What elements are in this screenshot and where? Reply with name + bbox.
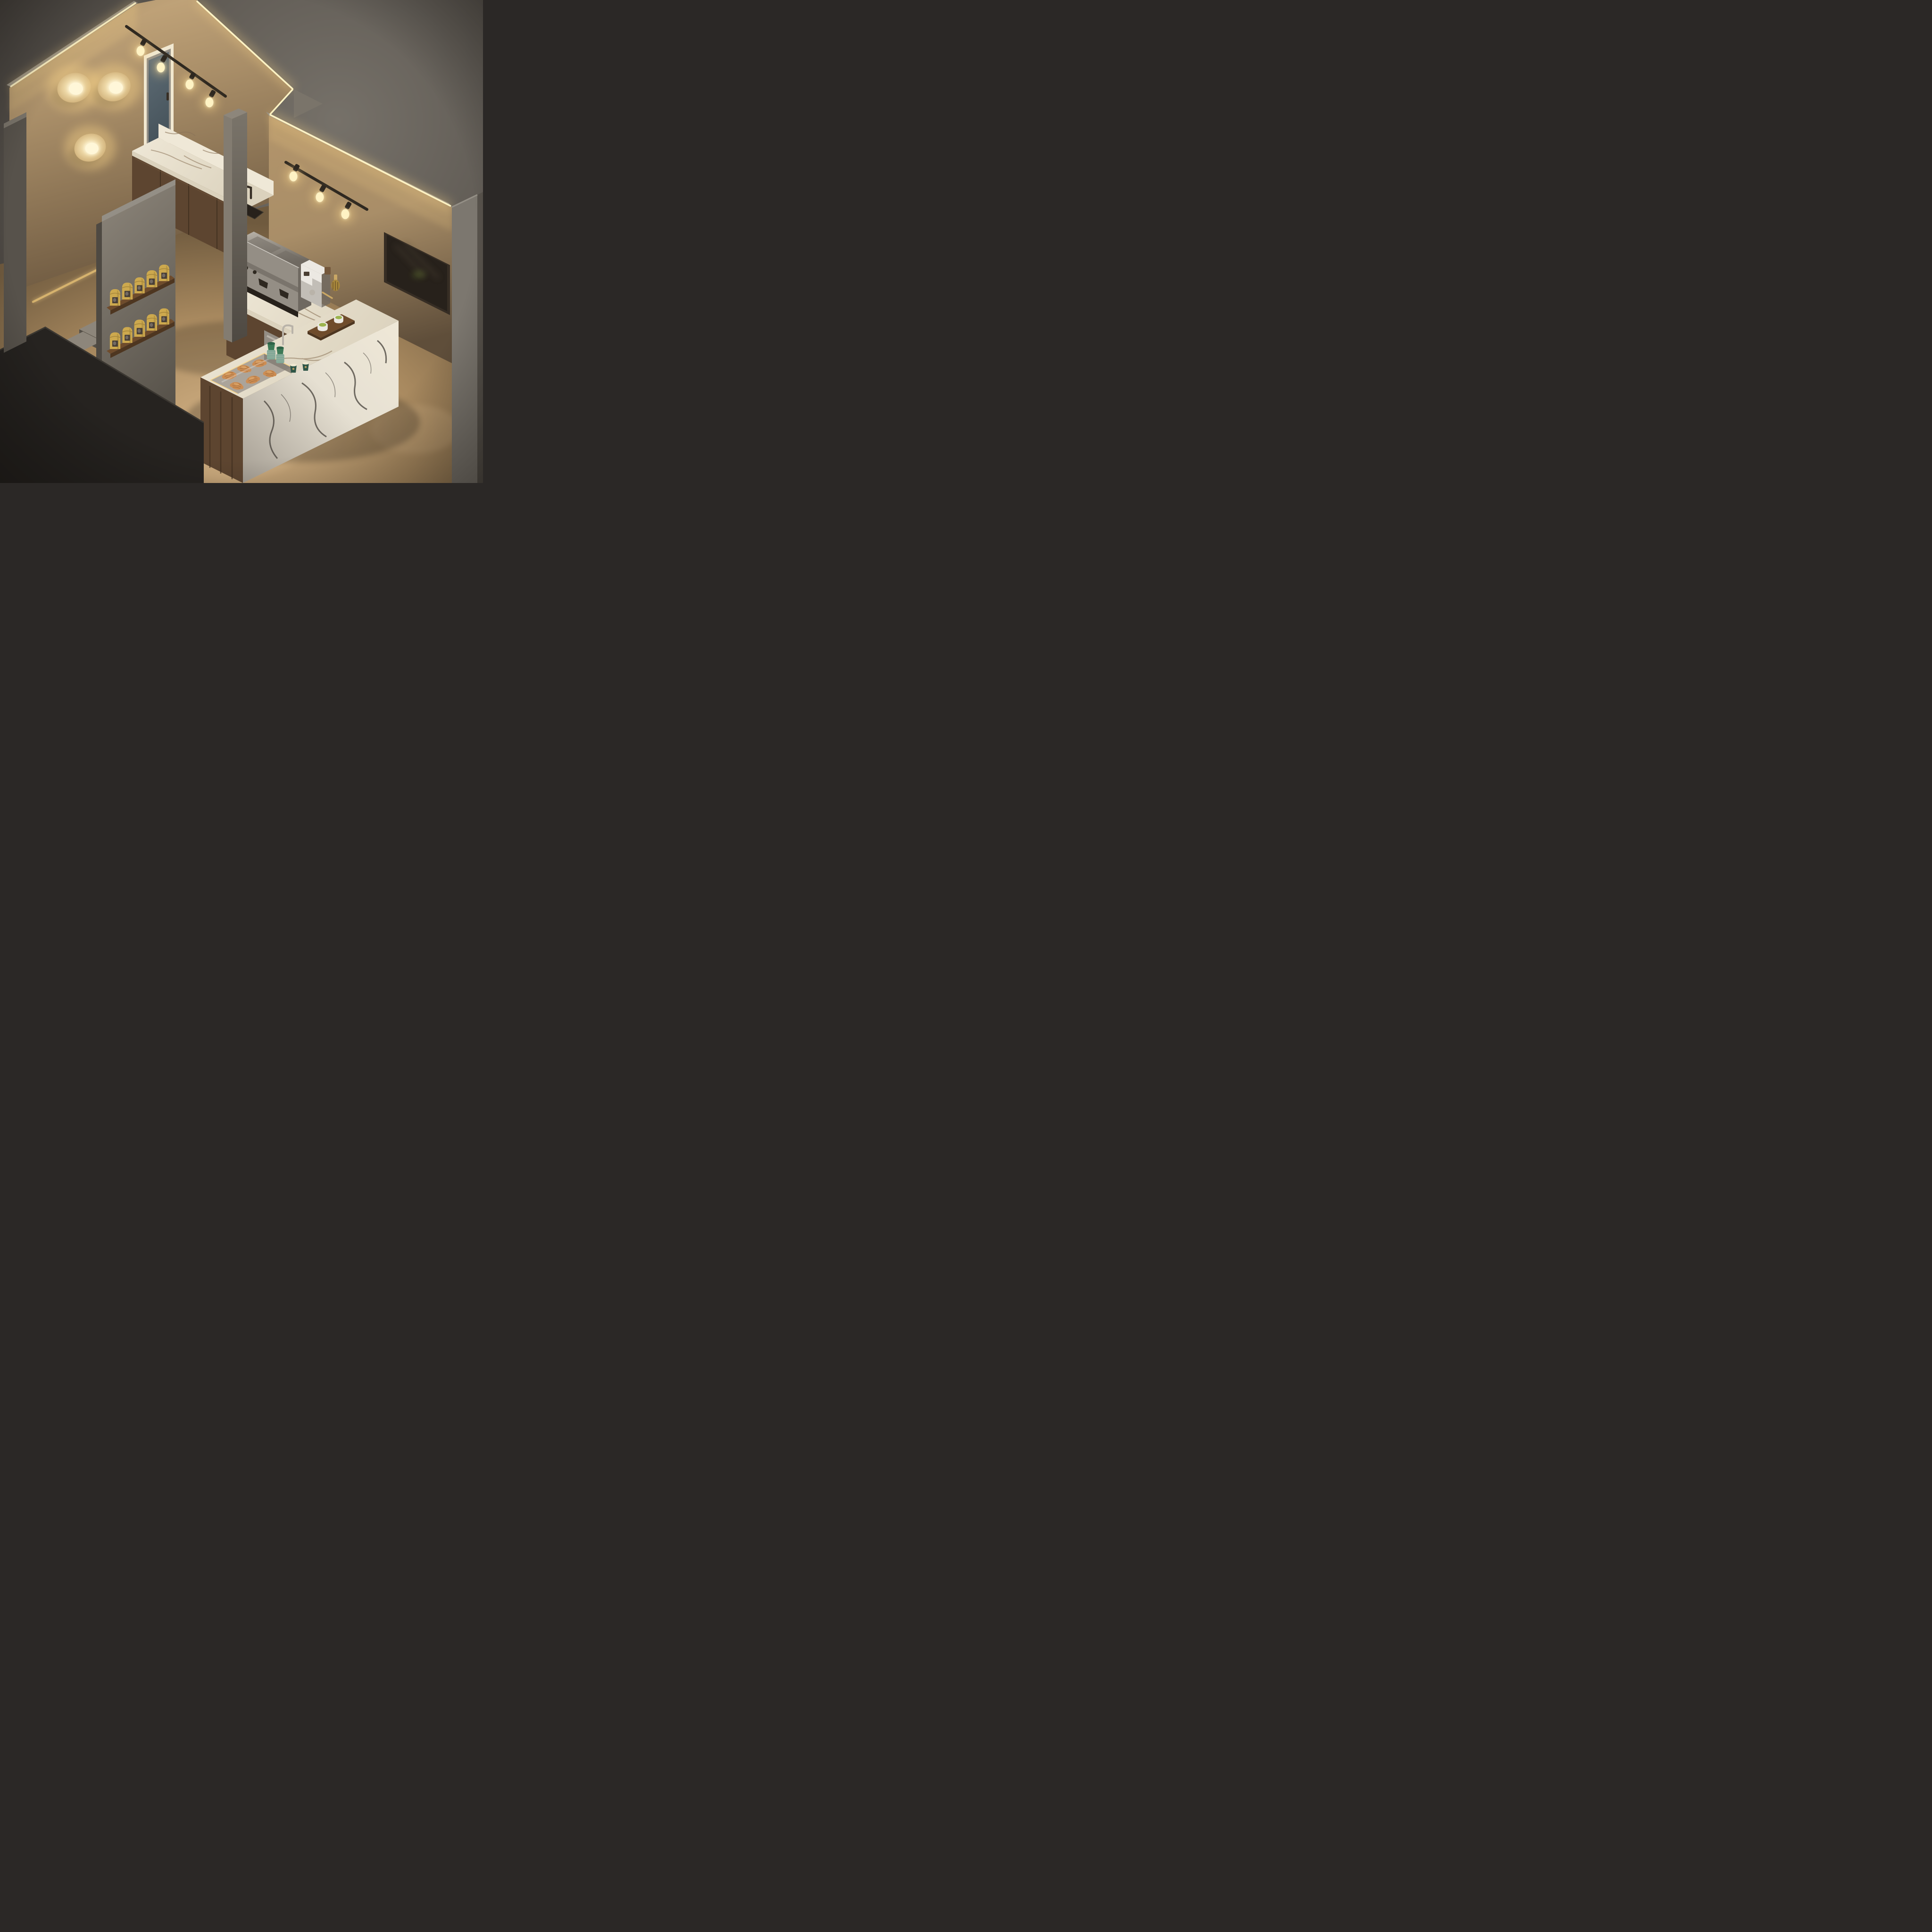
vignette-overlay [0,0,483,483]
isometric-cafe-render [0,0,483,483]
scene-stage [0,0,483,483]
